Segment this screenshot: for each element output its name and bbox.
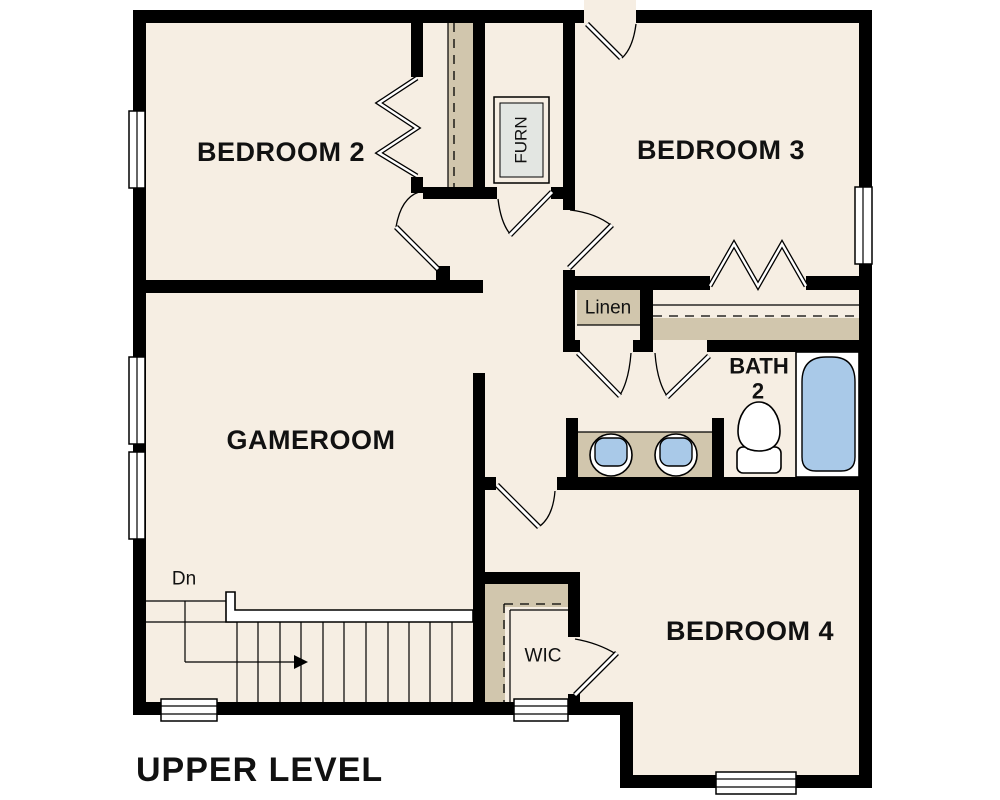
page-title: UPPER LEVEL xyxy=(136,751,383,789)
window-stairs-bottom xyxy=(161,699,217,721)
stairs-down-label: Dn xyxy=(172,569,196,590)
bedroom4-label: BEDROOM 4 xyxy=(666,616,834,646)
wall-bath-top xyxy=(707,340,859,352)
wall-bedroom3-bottom-mid xyxy=(652,276,710,290)
wall-linen-top xyxy=(563,276,653,290)
wall-bedroom2-closet-stub-top xyxy=(411,23,423,77)
window-bedroom2-left xyxy=(129,111,145,188)
wall-gameroom-hall xyxy=(473,373,485,715)
wall-wic-right xyxy=(568,584,580,637)
wall-linen-left xyxy=(563,276,575,340)
floor-plan-page: BEDROOM 2 BEDROOM 3 GAMEROOM BEDROOM 4 B… xyxy=(0,0,1000,800)
wall-closet-furnace-divider xyxy=(473,23,485,187)
window-gameroom-left-1 xyxy=(129,357,145,444)
floor-plan: BEDROOM 2 BEDROOM 3 GAMEROOM BEDROOM 4 B… xyxy=(0,0,1000,800)
wall-vanity-left xyxy=(566,418,578,478)
wall-bedroom2-gameroom xyxy=(133,280,483,293)
wic-label: WIC xyxy=(525,646,562,667)
wall-vanity-right xyxy=(712,418,724,478)
bedroom3-label: BEDROOM 3 xyxy=(637,135,805,165)
wall-wic-top xyxy=(485,572,580,584)
wall-hall-top xyxy=(423,187,497,199)
linen-label: Linen xyxy=(585,298,632,319)
bedroom2-closet-shelf xyxy=(448,23,473,187)
bath-label: BATH xyxy=(729,354,788,379)
wall-exterior-top xyxy=(133,10,872,23)
window-gameroom-left-2 xyxy=(129,452,145,539)
gameroom-label: GAMEROOM xyxy=(227,425,396,455)
wic-shelf-left xyxy=(485,584,505,702)
window-wic-bottom xyxy=(514,699,568,721)
wall-bedroom3-left xyxy=(563,10,575,210)
bedroom3-closet-shelf xyxy=(653,318,859,340)
wall-wic-door-block xyxy=(568,694,580,707)
sink-left xyxy=(590,434,632,476)
sink-right xyxy=(655,434,697,476)
wall-bath-top-mid xyxy=(633,340,653,352)
wall-bedroom3-bottom-right xyxy=(806,276,859,290)
wall-exterior-right xyxy=(859,10,872,788)
furnace-label: FURN xyxy=(512,116,531,163)
wall-corridor-door-block xyxy=(563,340,580,352)
bedroom3-entry-alcove xyxy=(584,0,636,23)
window-bedroom3-right xyxy=(855,187,872,264)
bathtub xyxy=(796,352,859,477)
bath-number-label: 2 xyxy=(752,379,764,404)
bedroom2-label: BEDROOM 2 xyxy=(197,137,365,167)
wall-bedroom2-closet-stub-bottom xyxy=(411,177,423,193)
window-bedroom4-bottom xyxy=(716,772,796,794)
wall-bath-bottom xyxy=(557,477,859,490)
toilet xyxy=(737,402,781,473)
